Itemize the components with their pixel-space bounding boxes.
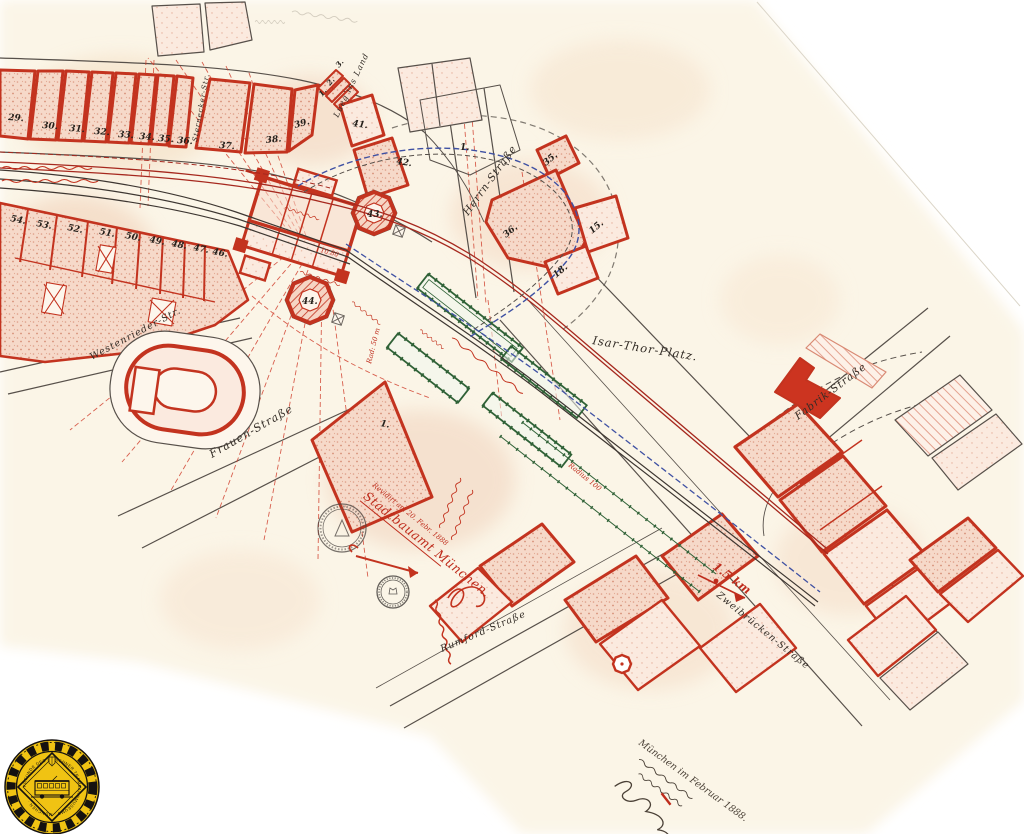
parcel-number: 43.: [367, 210, 383, 220]
parcel-number: 44.: [302, 297, 318, 307]
tram-museum-badge: FREUNDE DES MÜNCHNER TRAMBAHNMUSEUMS · M…: [5, 740, 99, 834]
parcel-number: 33.: [118, 130, 134, 141]
parcel-number: 36.: [177, 136, 193, 147]
parcel-number: 32.: [94, 127, 110, 138]
parcel-number: 30.: [42, 121, 58, 132]
parcel-number: 1.: [460, 143, 469, 153]
parcel-number: 29.: [7, 113, 24, 124]
historic-map-scan: Revidirt am 20. Febr. 1888 Stadtbauamt M…: [0, 0, 1024, 834]
parcel-number: 35.: [158, 134, 174, 145]
parcel-number: 34.: [139, 132, 155, 143]
small-octagon-kiosk: [613, 655, 631, 673]
parcel-number: 38.: [265, 134, 282, 146]
parcel-number: 31.: [69, 124, 85, 135]
parcel-number: 1.: [379, 419, 390, 430]
parcel-number: 37.: [219, 141, 235, 152]
